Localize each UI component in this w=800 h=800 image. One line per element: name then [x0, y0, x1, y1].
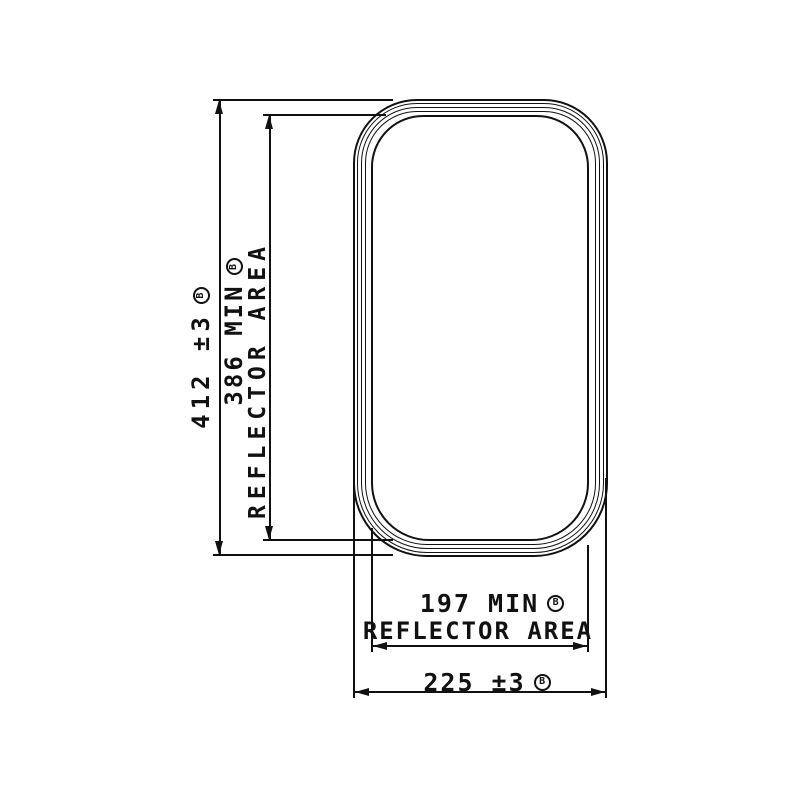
dim-height-overall-value: 412 ±3: [187, 312, 215, 429]
note-b-letter: B: [553, 598, 559, 608]
reflector-area-text-vertical: REFLECTOR AREA: [245, 241, 271, 519]
reflector-area-outline: [371, 115, 589, 541]
note-b-letter: B: [229, 264, 239, 270]
note-b-letter: B: [539, 677, 545, 687]
extension-line-top-overall: [213, 99, 393, 101]
extension-line-left-overall: [353, 478, 355, 698]
note-b-symbol: B: [226, 258, 243, 275]
arrowhead-up-overall: [215, 100, 223, 114]
dim-width-overall-label: 225 ±3 B: [337, 669, 637, 695]
dim-height-overall-label: 412 ±3 B: [187, 208, 215, 508]
dim-width-reflector-value: 197 MIN: [420, 589, 539, 618]
dim-width-reflector-label: 197 MIN B: [342, 590, 642, 616]
technical-drawing-canvas: 412 ±3 B 386 MIN B REFLECTOR AREA 197 MI…: [0, 0, 800, 800]
note-b-letter: B: [196, 293, 206, 299]
extension-line-top-reflector: [263, 114, 386, 116]
arrowhead-down-overall: [215, 541, 223, 555]
dim-width-overall-value: 225 ±3: [423, 668, 525, 697]
extension-line-right-overall: [605, 478, 607, 698]
note-b-symbol: B: [193, 287, 210, 304]
dim-width-reflector-area-label: REFLECTOR AREA: [328, 618, 628, 644]
dim-height-reflector-area-label: REFLECTOR AREA: [244, 230, 272, 530]
reflector-area-text-horizontal: REFLECTOR AREA: [363, 617, 593, 645]
note-b-symbol: B: [534, 674, 551, 691]
extension-line-bottom-reflector: [263, 539, 393, 541]
note-b-symbol: B: [547, 595, 564, 612]
arrowhead-up-reflector: [265, 115, 273, 129]
extension-line-bottom-overall: [213, 554, 393, 556]
dimension-line-width-reflector: [373, 645, 587, 647]
